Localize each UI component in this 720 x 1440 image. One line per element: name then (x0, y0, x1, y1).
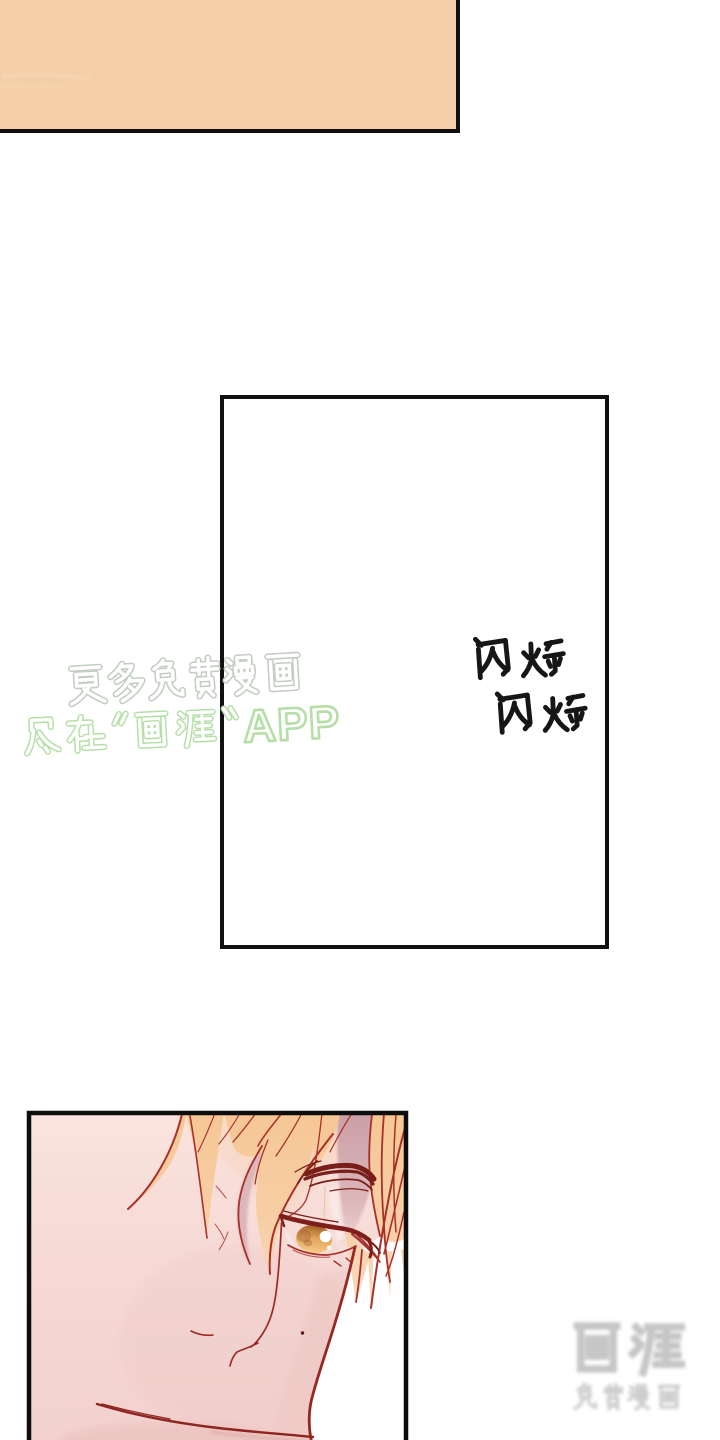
svg-text:APP: APP (241, 695, 341, 752)
